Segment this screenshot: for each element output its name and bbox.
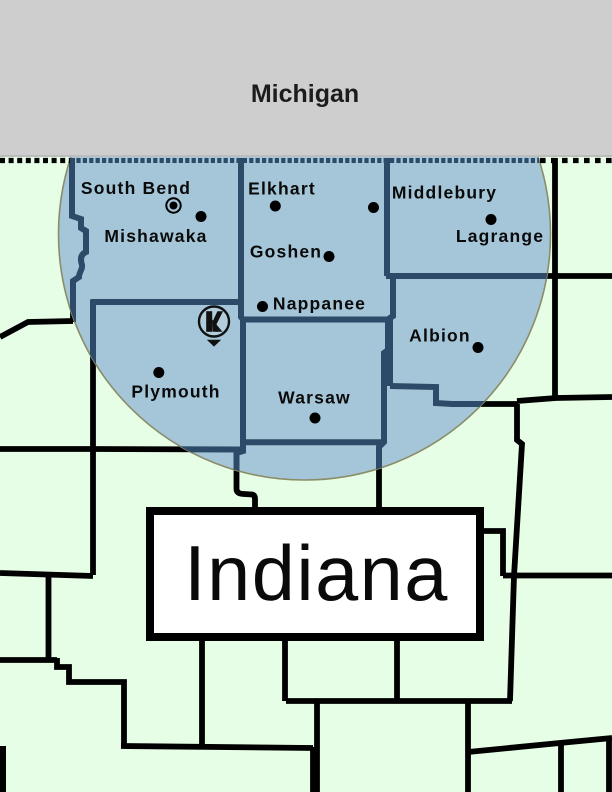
svg-text:Nappanee: Nappanee <box>273 294 366 314</box>
svg-text:Goshen: Goshen <box>250 242 322 262</box>
svg-text:Indiana: Indiana <box>184 531 449 617</box>
svg-text:Lagrange: Lagrange <box>456 226 544 246</box>
svg-text:Mishawaka: Mishawaka <box>104 226 207 246</box>
svg-text:Warsaw: Warsaw <box>278 388 351 408</box>
svg-text:Middlebury: Middlebury <box>392 183 497 203</box>
svg-text:South Bend: South Bend <box>81 178 191 198</box>
svg-text:Michigan: Michigan <box>251 80 359 108</box>
svg-text:Albion: Albion <box>409 326 471 346</box>
svg-text:Plymouth: Plymouth <box>131 381 220 401</box>
svg-text:Elkhart: Elkhart <box>248 179 316 199</box>
